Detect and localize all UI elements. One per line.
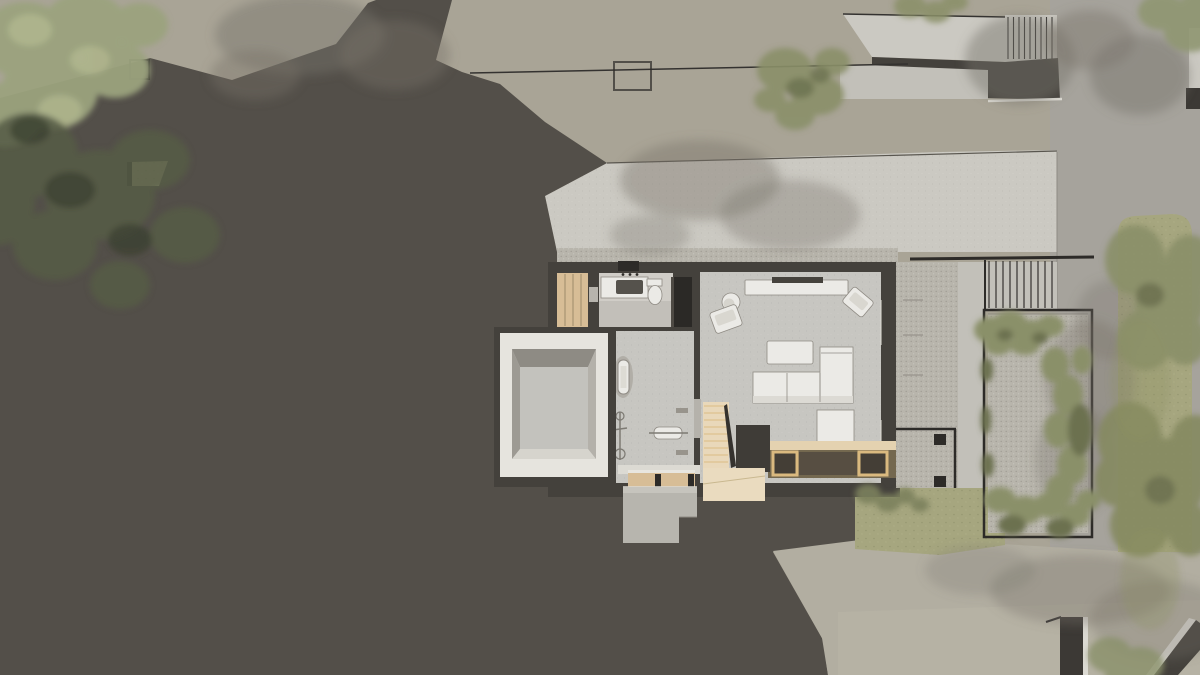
lower-landing	[840, 64, 988, 99]
daybed-cubby	[859, 452, 887, 475]
gate-post	[934, 476, 946, 487]
sunken-courtyard	[494, 327, 616, 487]
toilet	[648, 286, 662, 305]
wall-rack	[676, 408, 688, 413]
bathroom-floor-shade	[599, 301, 673, 327]
pergola-beam	[910, 257, 1094, 259]
faucet	[622, 273, 625, 276]
stair-landing	[703, 468, 765, 501]
stairwell-wall	[736, 425, 770, 472]
gym-door	[694, 399, 701, 438]
sofa-chaise	[820, 347, 853, 403]
daybed-top	[768, 441, 898, 450]
daybed-platform	[768, 441, 898, 478]
bathroom	[599, 273, 692, 327]
gym	[613, 331, 694, 483]
daybed-shelf	[799, 452, 857, 475]
sink	[616, 280, 643, 294]
sofa-back	[753, 396, 853, 403]
drawer-slot	[688, 474, 694, 487]
wall-rack	[676, 450, 688, 455]
terrace-gravel-edge	[557, 248, 898, 263]
wardrobe	[671, 277, 692, 327]
toilet-tank	[647, 279, 662, 286]
tv	[772, 277, 823, 283]
site-plan-canvas	[0, 0, 1200, 675]
gate-post	[934, 434, 946, 445]
closet-cabinet	[589, 287, 598, 302]
daybed-cubby	[773, 452, 797, 475]
drawer-slot	[655, 474, 661, 487]
right-wall-cap	[1186, 88, 1200, 109]
drawer-bench	[628, 472, 695, 488]
wall-vent	[618, 261, 639, 271]
coffee-table	[767, 341, 813, 364]
wardrobe-edge	[671, 277, 674, 327]
